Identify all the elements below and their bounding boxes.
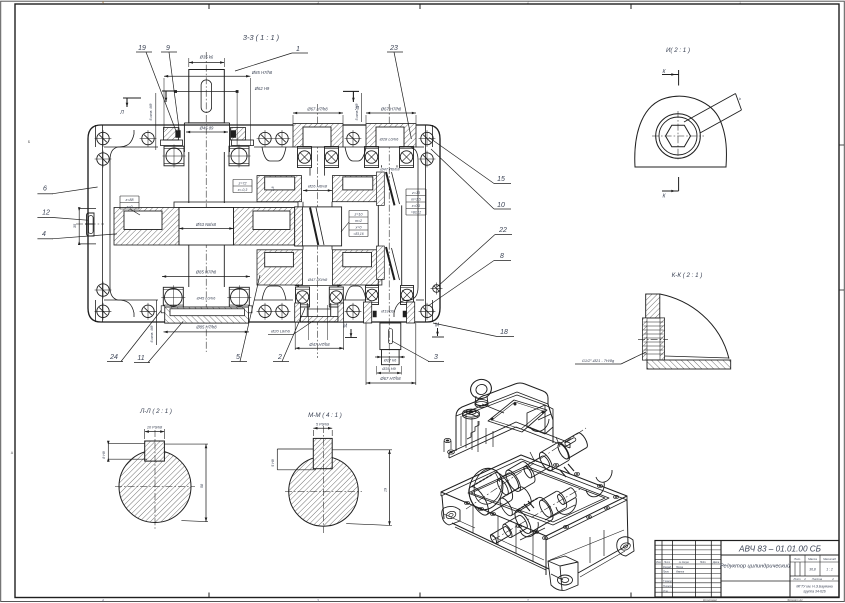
svg-text:Ø45 д9: Ø45 д9 (199, 126, 214, 131)
svg-text:x=-0,3: x=-0,3 (237, 188, 248, 192)
svg-text:Ø45 L0/h6: Ø45 L0/h6 (196, 296, 216, 301)
svg-text:24: 24 (109, 354, 118, 361)
svg-text:Ø35 k6: Ø35 k6 (199, 55, 214, 60)
svg-text:6 отв. М8: 6 отв. М8 (150, 326, 154, 343)
svg-text:Редуктор цилиндрический: Редуктор цилиндрический (720, 563, 790, 570)
svg-text:Копировал: Копировал (703, 598, 717, 602)
svg-text:Подп.: Подп. (700, 561, 707, 564)
svg-text:x=0: x=0 (126, 205, 133, 209)
svg-text:Ø67 H7/h8: Ø67 H7/h8 (379, 376, 401, 381)
svg-text:Ø53 N8/x8: Ø53 N8/x8 (195, 222, 217, 227)
svg-text:6: 6 (43, 186, 47, 193)
svg-text:G1/2″-Ø21 - 7Н/8g: G1/2″-Ø21 - 7Н/8g (582, 358, 615, 363)
svg-text:12: 12 (42, 210, 50, 217)
svg-text:Л-Л ( 2 : 1 ): Л-Л ( 2 : 1 ) (139, 408, 172, 415)
svg-text:Ø67 H7/h8: Ø67 H7/h8 (380, 107, 402, 112)
svg-text:11: 11 (137, 355, 144, 362)
svg-text:АВЧ 83 – 01.01.00 СБ: АВЧ 83 – 01.01.00 СБ (738, 545, 822, 554)
svg-text:2: 2 (277, 354, 282, 361)
svg-text:19: 19 (138, 45, 146, 52)
svg-text:Формат А1: Формат А1 (787, 598, 803, 602)
svg-text:Ø19 d9: Ø19 d9 (380, 310, 394, 314)
svg-text:3: 3 (434, 354, 438, 361)
svg-text:8: 8 (500, 253, 504, 260)
svg-text:1: 1 (296, 46, 300, 53)
svg-text:z=10: z=10 (354, 213, 363, 217)
svg-text:x=0,3: x=0,3 (411, 204, 421, 208)
svg-text:Ø47 H7/h8: Ø47 H7/h8 (308, 342, 330, 347)
svg-text:5 отв. М8: 5 отв. М8 (355, 104, 359, 121)
svg-text:Т.контр.: Т.контр. (663, 580, 673, 583)
svg-text:z=72: z=72 (238, 182, 247, 186)
svg-text:15: 15 (497, 176, 505, 183)
svg-text:10 P9/h8: 10 P9/h8 (147, 426, 163, 430)
svg-text:3: 3 (317, 598, 319, 602)
svg-text:7,8: 7,8 (271, 187, 275, 192)
svg-text:5: 5 (236, 354, 240, 361)
svg-text:М-М ( 4 : 1 ): М-М ( 4 : 1 ) (308, 412, 342, 419)
svg-text:6 отв. М8: 6 отв. М8 (149, 104, 153, 121)
svg-text:Дата: Дата (712, 561, 720, 564)
svg-text:Лист: Лист (663, 561, 670, 564)
svg-text:Л: Л (119, 110, 124, 116)
svg-text:Утв.: Утв. (663, 590, 669, 593)
svg-text:3: 3 (317, 1, 319, 5)
svg-text:x=0: x=0 (355, 226, 362, 230)
svg-text:z=13: z=13 (411, 191, 420, 195)
svg-text:Попов: Попов (676, 566, 684, 569)
svg-text:К-К ( 2 : 1 ): К-К ( 2 : 1 ) (672, 272, 703, 279)
svg-text:10: 10 (497, 202, 505, 209)
svg-text:Разраб.: Разраб. (663, 566, 672, 569)
svg-text:9: 9 (166, 45, 170, 52)
svg-text:Ø62 Н9: Ø62 Н9 (254, 86, 270, 91)
svg-text:8 Н9: 8 Н9 (102, 451, 106, 459)
svg-text:b: b (739, 97, 741, 101)
svg-text:=83,16: =83,16 (353, 232, 363, 236)
svg-text:Н.контр.: Н.контр. (663, 585, 673, 588)
svg-text:18: 18 (500, 329, 508, 336)
svg-text:Ø26 Н8/х8: Ø26 Н8/х8 (307, 184, 328, 189)
svg-text:5 Н9: 5 Н9 (271, 459, 275, 467)
svg-text:Лит.: Лит. (793, 557, 801, 561)
svg-text:m=2: m=2 (355, 219, 362, 223)
svg-text:Ø17 k6: Ø17 k6 (383, 358, 397, 363)
svg-text:Ø47 Л0/h8: Ø47 Л0/h8 (379, 166, 400, 171)
svg-text:1: 1 (739, 1, 741, 5)
svg-text:Масса: Масса (808, 557, 817, 561)
svg-text:=83,12: =83,12 (411, 211, 421, 215)
svg-text:Ø35 H9: Ø35 H9 (381, 366, 396, 371)
svg-text:23: 23 (389, 45, 398, 52)
svg-text:4: 4 (42, 231, 46, 238)
svg-text:5 P9/h9: 5 P9/h9 (316, 422, 330, 426)
svg-text:Ø85 H7/h8: Ø85 H7/h8 (195, 270, 217, 275)
svg-text:И( 2 : 1 ): И( 2 : 1 ) (666, 47, 690, 54)
svg-text:4: 4 (102, 598, 104, 602)
svg-text:Масштаб: Масштаб (823, 557, 836, 561)
svg-text:Листов: Листов (811, 577, 823, 581)
svg-text:Ø47 П0/h8: Ø47 П0/h8 (307, 277, 328, 282)
svg-text:Ø28 L0/h6: Ø28 L0/h6 (379, 137, 399, 142)
svg-text:Иванов: Иванов (676, 571, 685, 574)
svg-text:2: 2 (527, 1, 529, 5)
svg-text:z=88: z=88 (125, 198, 134, 202)
svg-text:Лист: Лист (792, 577, 801, 581)
svg-text:№ докум.: № докум. (679, 561, 690, 564)
svg-text:МГТУ им. Н.Э.Баумана: МГТУ им. Н.Э.Баумана (796, 585, 832, 589)
svg-text:Пров.: Пров. (663, 571, 670, 574)
svg-text:2: 2 (831, 577, 834, 581)
svg-text:Ø67 H7/h8: Ø67 H7/h8 (306, 107, 328, 112)
svg-text:22: 22 (498, 227, 507, 234)
svg-text:Ø85 H7/h8: Ø85 H7/h8 (251, 70, 273, 75)
svg-text:Изм: Изм (656, 561, 661, 564)
svg-text:Ø20 L8/h6: Ø20 L8/h6 (270, 329, 290, 334)
svg-text:Ø85 H7/h8: Ø85 H7/h8 (195, 325, 217, 330)
svg-text:1 : 2: 1 : 2 (826, 568, 833, 572)
svg-text:группа 34-626: группа 34-626 (803, 590, 825, 594)
svg-text:m=1,5: m=1,5 (411, 198, 421, 202)
svg-text:2: 2 (803, 577, 806, 581)
svg-text:2: 2 (527, 598, 529, 602)
svg-text:3-3 ( 1 : 1 ): 3-3 ( 1 : 1 ) (243, 33, 280, 42)
svg-text:4: 4 (102, 0, 104, 4)
svg-text:36,8: 36,8 (809, 568, 816, 572)
